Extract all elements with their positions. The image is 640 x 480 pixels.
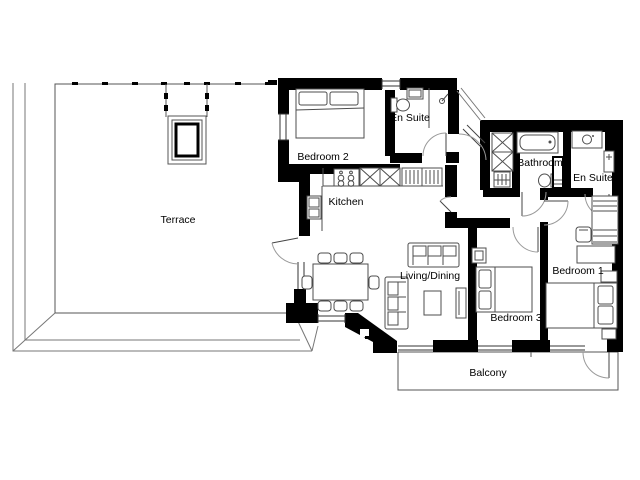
hob-icon: [334, 169, 359, 186]
diagonal-wall-tick: [365, 336, 370, 339]
ensuite-top-door-arc: [423, 133, 446, 156]
double-bed-icon: [296, 89, 364, 138]
room-label-living-dining: Living/Dining: [400, 270, 460, 282]
terrace-door-arc: [272, 238, 298, 264]
room-label-balcony: Balcony: [469, 367, 507, 379]
storage-shelf-icon: [492, 133, 513, 171]
double-bed-icon: [476, 267, 532, 312]
dining-table-icon: [302, 253, 379, 311]
diagonal-wall-notch: [360, 329, 369, 337]
shower-icon: [604, 151, 614, 172]
sofa-icon-left: [385, 277, 408, 329]
room-label-kitchen: Kitchen: [328, 196, 363, 208]
desk-icon: [577, 246, 615, 263]
sofa-icon-top: [408, 243, 459, 267]
kitchen-sink-icon: [360, 168, 400, 186]
fridge-icon: [307, 196, 321, 219]
room-label-terrace: Terrace: [160, 214, 195, 226]
cupboard-unit-icon: [494, 172, 510, 187]
toilet-icon: [391, 98, 410, 112]
basin-icon: [572, 131, 602, 148]
cupboard-fixtures: [492, 133, 513, 187]
tv-unit-icon: [456, 288, 466, 318]
wardrobe-icon: [592, 196, 618, 244]
coffee-table-icon: [424, 291, 441, 315]
bedroom2-furniture: [296, 89, 364, 138]
window-icon-bedroom3-south: [478, 346, 512, 350]
basin-icon: [407, 88, 423, 99]
window-icon-top: [382, 79, 400, 89]
kitchen-door-arc: [440, 197, 451, 212]
bathtub-icon: [517, 132, 558, 153]
room-label-bedroom2: Bedroom 2: [297, 151, 349, 163]
room-label-cupboard: C: [482, 163, 490, 175]
bedside-table-icon: [472, 248, 486, 263]
room-label-bedroom1: Bedroom 1: [552, 265, 604, 277]
bedroom3-furniture: [472, 248, 532, 312]
window-icon-living-south: [398, 346, 433, 350]
balcony-outline: [398, 352, 618, 390]
balcony-door-arc: [583, 352, 609, 378]
skylight-icon: [164, 84, 209, 164]
plate-rack-icon: [402, 168, 442, 186]
room-label-bedroom3: Bedroom 3: [490, 312, 542, 324]
floor-plan-page: Terrace Bedroom 2 En Suite Kitchen C Bat…: [0, 0, 640, 480]
window-icon-bedroom1-south: [550, 346, 585, 350]
double-bed-icon: [546, 283, 617, 328]
room-label-ensuite-top: En Suite: [390, 112, 430, 124]
bedroom1-door-arc: [544, 201, 568, 225]
bedside-table-icon: [602, 329, 616, 339]
window-icon-bedroom2-west: [278, 114, 289, 140]
chair-icon: [576, 227, 591, 242]
bedroom3-door-arc: [513, 227, 538, 252]
shower-icon: [429, 88, 448, 128]
kitchen-fixtures: [307, 168, 443, 231]
room-label-ensuite-right: En Suite: [573, 172, 613, 184]
floor-plan-svg: Terrace Bedroom 2 En Suite Kitchen C Bat…: [0, 0, 640, 480]
room-label-bathroom: Bathroom: [517, 157, 563, 169]
window-icon-living-southwest: [318, 314, 345, 323]
